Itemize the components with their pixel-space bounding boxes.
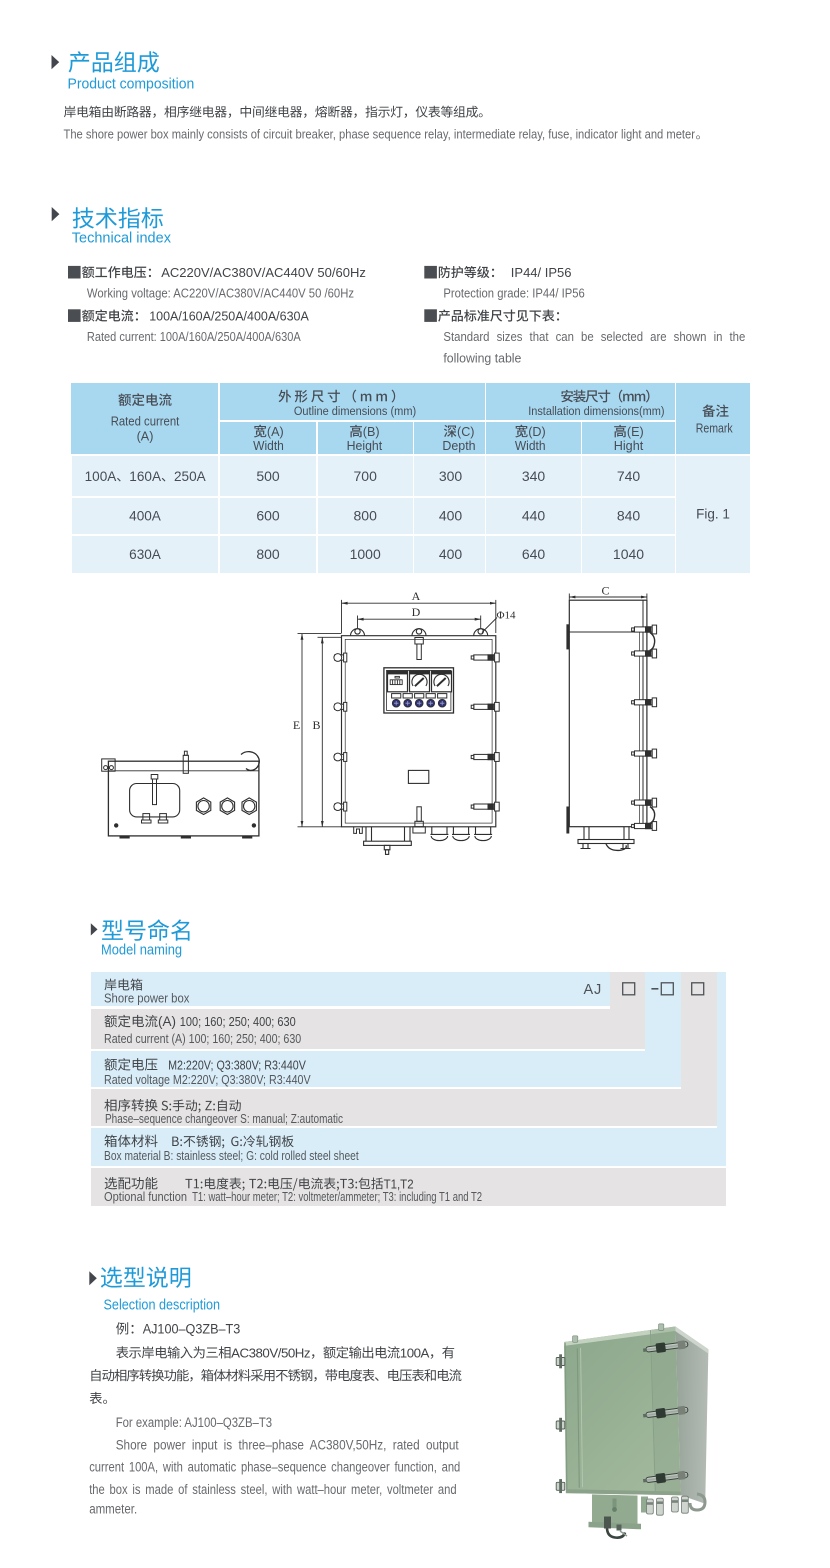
svg-text:the box is made of stainless s: the box is made of stainless steel, with…: [89, 1482, 456, 1497]
svg-text:T1: watt–hour meter; T2: voltm: T1: watt–hour meter; T2: voltmeter/ammet…: [192, 1189, 482, 1204]
svg-text:740: 740: [617, 468, 641, 484]
svg-text:Installation dimensions(mm): Installation dimensions(mm): [528, 404, 664, 418]
svg-text:C: C: [601, 584, 609, 598]
svg-text:Standard sizes that can be sel: Standard sizes that can be selected are …: [443, 329, 745, 344]
svg-text:Protection grade: IP44/ IP56: Protection grade: IP44/ IP56: [443, 285, 584, 300]
svg-text:(A): (A): [158, 1014, 176, 1029]
svg-text:Hight: Hight: [614, 439, 644, 453]
svg-text:Shore power box: Shore power box: [104, 990, 190, 1005]
svg-text:The shore power box mainly con: The shore power box mainly consists of c…: [64, 127, 696, 142]
svg-text:A: A: [412, 589, 421, 603]
svg-text:Phase–sequence changeover S:: Phase–sequence changeover S: manual; Z:a…: [105, 1111, 343, 1126]
svg-text:400: 400: [439, 507, 463, 523]
svg-text:E: E: [293, 718, 300, 732]
svg-text:AJ: AJ: [584, 982, 603, 998]
svg-text:following table: following table: [443, 351, 521, 366]
svg-text:100A: 100A: [85, 468, 117, 484]
svg-text:Working voltage: AC220V/AC380V: Working voltage: AC220V/AC380V/AC440V 50…: [87, 285, 354, 300]
svg-text:300: 300: [439, 468, 463, 484]
svg-text:current 100A, with automatic p: current 100A, with automatic phase–seque…: [89, 1460, 460, 1475]
svg-text:AJ100–Q3ZB–T3: AJ100–Q3ZB–T3: [143, 1322, 241, 1337]
svg-text:Product composition: Product composition: [68, 77, 195, 93]
svg-text:1040: 1040: [613, 546, 644, 562]
svg-text:Shore power input is three–pha: Shore power input is three–phase AC380V,…: [116, 1437, 459, 1452]
svg-text:630A: 630A: [129, 546, 161, 562]
svg-text:340: 340: [522, 468, 546, 484]
svg-text:Outline dimensions (mm): Outline dimensions (mm): [294, 404, 416, 418]
svg-text:1000: 1000: [350, 546, 381, 562]
svg-text:B: B: [312, 718, 320, 732]
svg-text:Rated current: 100A/160A/250A/: Rated current: 100A/160A/250A/400A/630A: [87, 329, 301, 344]
svg-text:(D): (D): [528, 425, 545, 439]
svg-text:(B): (B): [363, 425, 380, 439]
svg-text:Width: Width: [515, 439, 546, 453]
svg-text:400A: 400A: [129, 507, 161, 523]
svg-text:100A: 100A: [400, 1345, 430, 1360]
svg-text:AC380V/50Hz: AC380V/50Hz: [231, 1345, 310, 1360]
svg-text:Height: Height: [347, 439, 383, 453]
svg-text:(A): (A): [267, 425, 284, 439]
svg-text:440: 440: [522, 507, 546, 523]
svg-text:700: 700: [354, 468, 378, 484]
svg-text:Technical index: Technical index: [72, 230, 172, 246]
svg-text:(C): (C): [457, 425, 474, 439]
svg-text:500: 500: [256, 468, 280, 484]
svg-text:Model naming: Model naming: [101, 943, 182, 959]
svg-text:M2:220V; Q3:380V; R3:440V: M2:220V; Q3:380V; R3:440V: [168, 1059, 306, 1073]
svg-text:100A/160A/250A/400A/630A: 100A/160A/250A/400A/630A: [149, 309, 309, 324]
svg-text:Fig. 1: Fig. 1: [696, 507, 730, 522]
svg-text:640: 640: [522, 546, 546, 562]
svg-text:Remark: Remark: [696, 422, 734, 436]
svg-text:840: 840: [617, 507, 641, 523]
svg-text:ammeter.: ammeter.: [89, 1502, 137, 1517]
svg-text:IP44/ IP56: IP44/ IP56: [511, 265, 572, 280]
svg-text:For example: AJ100–Q3ZB–T3: For example: AJ100–Q3ZB–T3: [116, 1415, 272, 1430]
svg-text:800: 800: [354, 507, 378, 523]
svg-text:(E): (E): [627, 425, 644, 439]
svg-text:Φ14: Φ14: [497, 610, 517, 622]
svg-text:Rated current: Rated current: [111, 414, 180, 428]
svg-text:AC220V/AC380V/AC440V 50/60Hz: AC220V/AC380V/AC440V 50/60Hz: [161, 265, 366, 280]
svg-text:D: D: [412, 605, 421, 619]
svg-text:250A: 250A: [174, 468, 206, 484]
svg-text:(A): (A): [137, 430, 154, 444]
svg-text:160A: 160A: [129, 468, 161, 484]
svg-text:Width: Width: [253, 439, 284, 453]
svg-text:800: 800: [256, 546, 280, 562]
svg-text:Rated current (A) 100; 160; 25: Rated current (A) 100; 160; 250; 400; 63…: [104, 1031, 301, 1046]
svg-text:Box material B: stainless ste: Box material B: stainless steel; G: cold…: [104, 1148, 359, 1163]
svg-text:600: 600: [256, 507, 280, 523]
svg-text:Depth: Depth: [442, 439, 475, 453]
svg-text:400: 400: [439, 546, 463, 562]
svg-text:100; 160; 250; 400; 630: 100; 160; 250; 400; 630: [180, 1015, 296, 1029]
svg-text:Rated voltage M2:220V; Q3:38: Rated voltage M2:220V; Q3:380V; R3:440V: [104, 1072, 311, 1087]
svg-text:Optional function: Optional function: [104, 1189, 187, 1204]
svg-text:Selection description: Selection description: [104, 1298, 221, 1314]
